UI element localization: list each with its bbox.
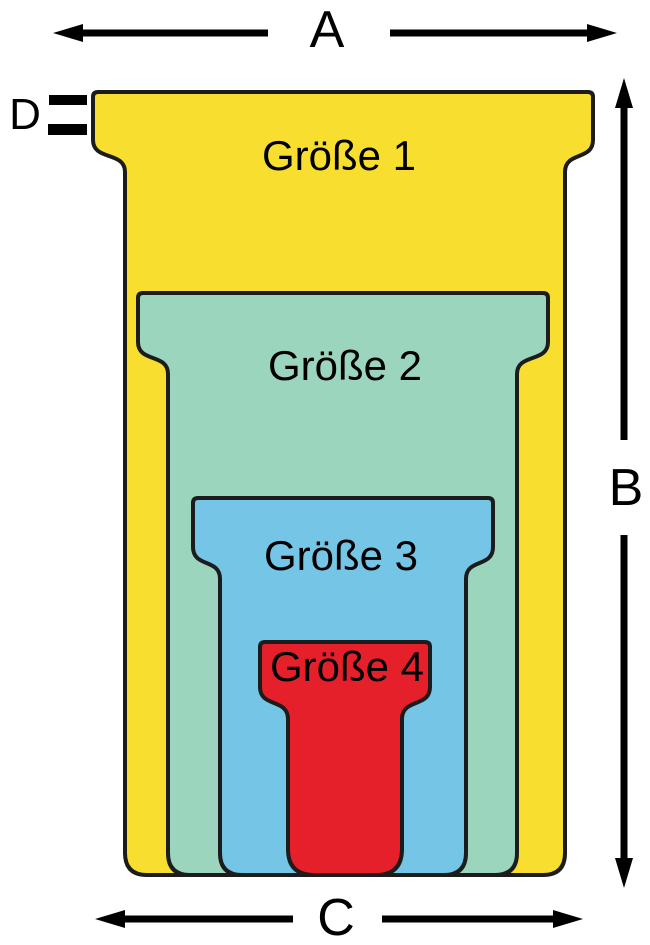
arrow-b-bottom-shaft (621, 535, 628, 860)
diagram-canvas: A D Größe 1 Größe 2 Größe 3 Größe 4 B (0, 0, 650, 945)
arrow-b-bottom-head-icon (615, 858, 633, 888)
dimension-arrow-c: C (95, 889, 583, 945)
arrow-c-left-head-icon (95, 910, 125, 928)
arrow-a-left-head-icon (53, 24, 83, 42)
dimension-label-c: C (317, 889, 355, 945)
arrow-a-right-head-icon (587, 24, 617, 42)
arrow-a-right-shaft (390, 30, 587, 37)
d-lower-tick (48, 124, 87, 135)
dimension-label-a: A (310, 1, 345, 59)
d-upper-tick (49, 95, 87, 105)
dimension-label-b: B (609, 459, 644, 517)
dimension-label-d: D (9, 90, 41, 139)
arrow-c-right-head-icon (553, 910, 583, 928)
t-card-size-diagram: A D Größe 1 Größe 2 Größe 3 Größe 4 B (0, 0, 650, 945)
arrow-b-top-head-icon (615, 78, 633, 108)
card-groesse-3-label: Größe 3 (264, 532, 418, 579)
arrow-c-left-shaft (123, 916, 293, 923)
card-groesse-1-label: Größe 1 (262, 132, 416, 179)
card-groesse-4-label: Größe 4 (270, 643, 424, 690)
card-groesse-2-label: Größe 2 (268, 342, 422, 389)
arrow-c-right-shaft (382, 916, 553, 923)
dimension-d: D (9, 90, 87, 139)
dimension-arrow-b: B (609, 78, 644, 888)
arrow-a-left-shaft (81, 30, 268, 37)
arrow-b-top-shaft (621, 106, 628, 440)
dimension-arrow-a: A (53, 1, 617, 59)
